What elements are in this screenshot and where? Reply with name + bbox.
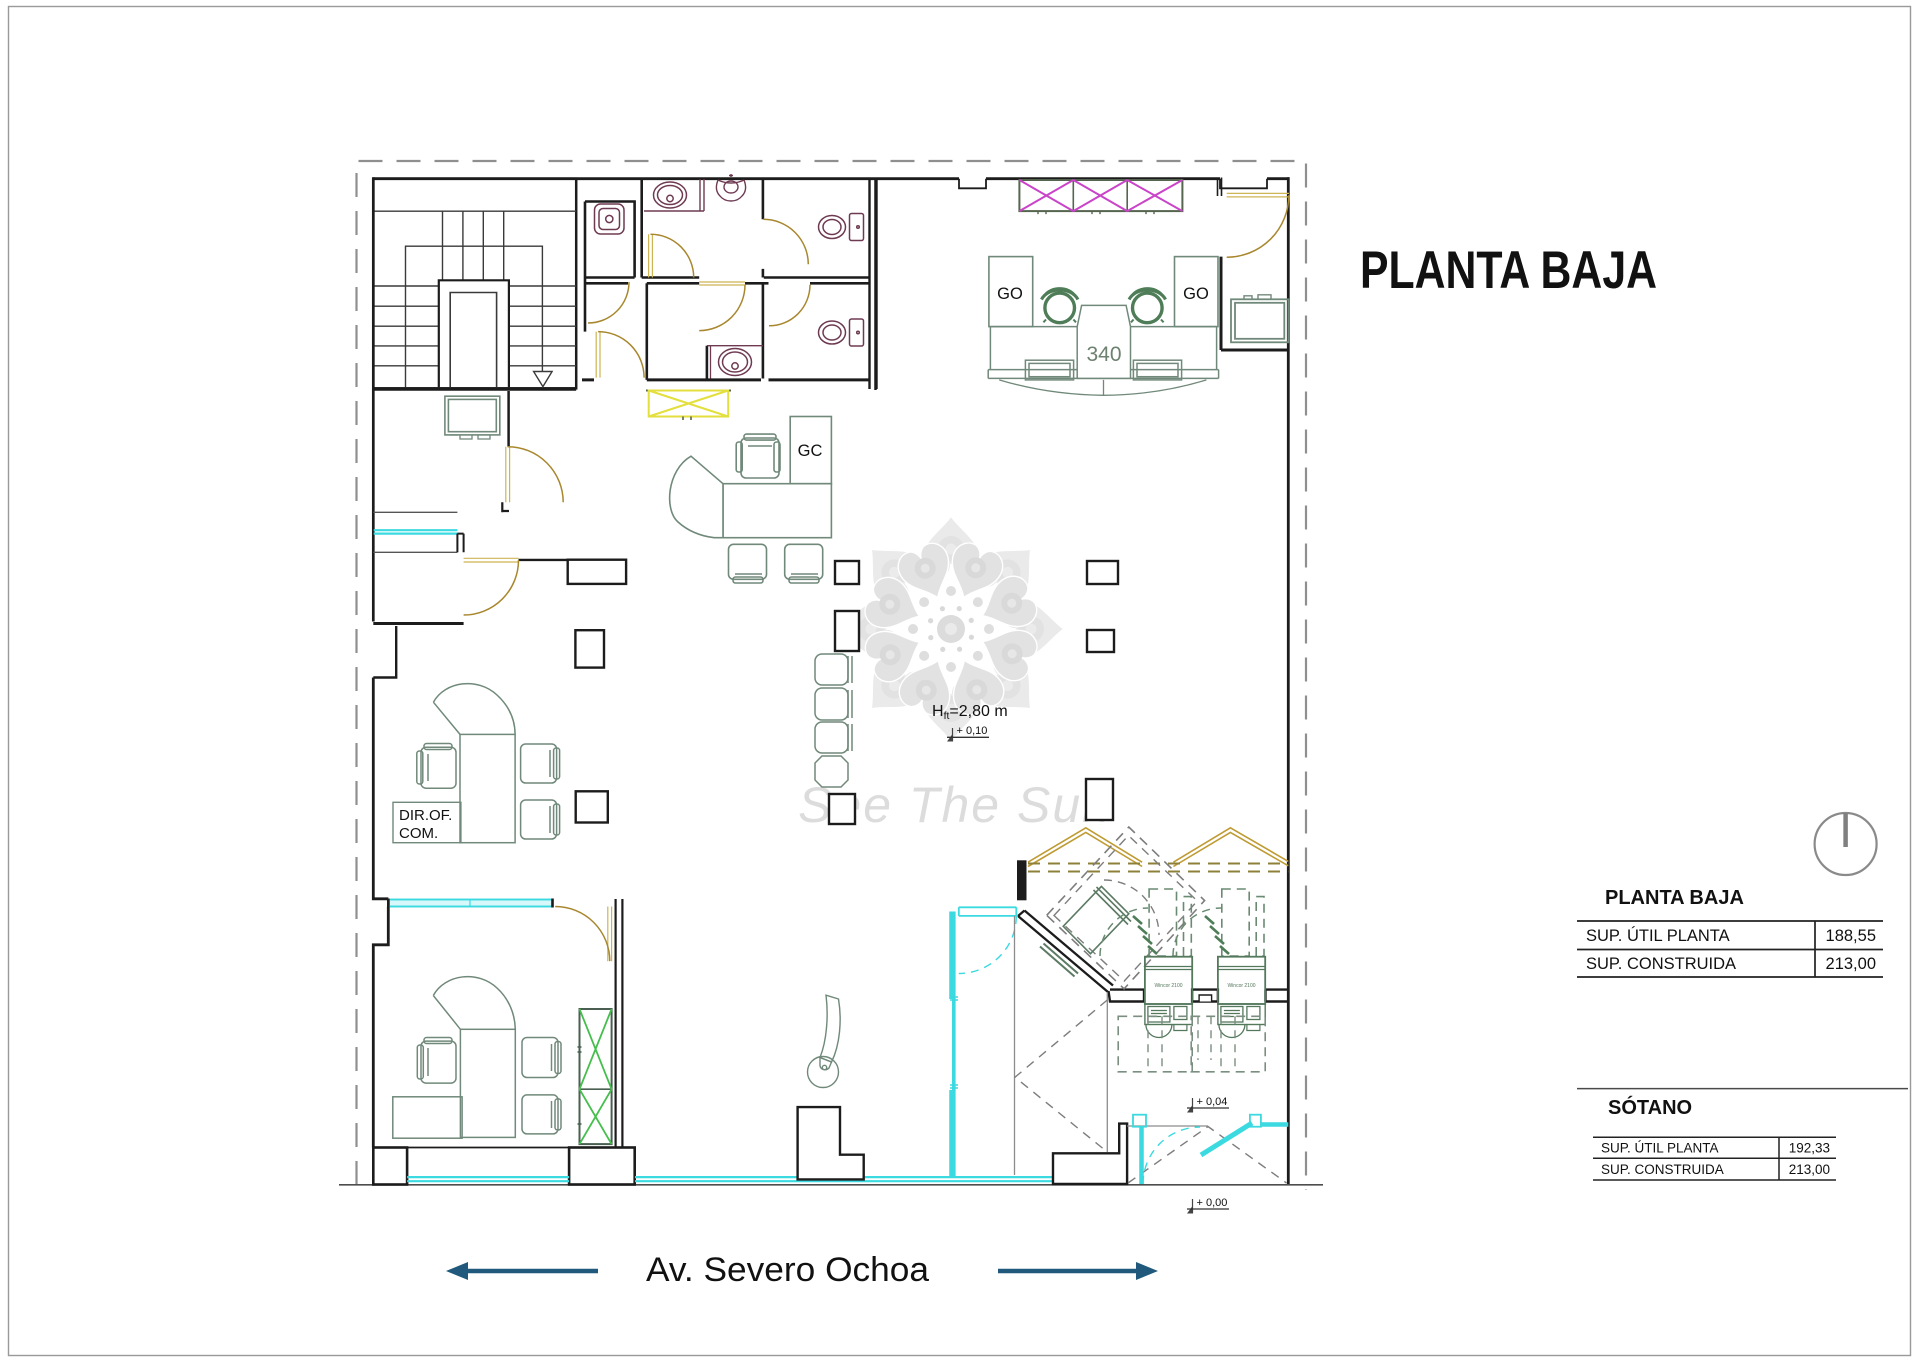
svg-text:COM.: COM. <box>399 825 438 842</box>
svg-text:340: 340 <box>1086 343 1121 366</box>
svg-text:+ 0,04: + 0,04 <box>1197 1096 1228 1108</box>
svg-text:SUP. ÚTIL PLANTA: SUP. ÚTIL PLANTA <box>1586 926 1730 945</box>
svg-text:Hft=2,80 m: Hft=2,80 m <box>932 703 1008 722</box>
svg-text:Av. Severo Ochoa: Av. Severo Ochoa <box>646 1251 929 1289</box>
svg-text:SUP. ÚTIL PLANTA: SUP. ÚTIL PLANTA <box>1601 1141 1719 1156</box>
svg-text:DIR.OF.: DIR.OF. <box>399 807 452 824</box>
svg-text:Wincor 2100: Wincor 2100 <box>1227 983 1255 989</box>
svg-text:213,00: 213,00 <box>1826 955 1876 973</box>
svg-text:SUP. CONSTRUIDA: SUP. CONSTRUIDA <box>1601 1162 1724 1177</box>
svg-text:SUP. CONSTRUIDA: SUP. CONSTRUIDA <box>1586 955 1736 973</box>
svg-text:192,33: 192,33 <box>1789 1141 1830 1156</box>
svg-text:PLANTA BAJA: PLANTA BAJA <box>1605 887 1744 909</box>
svg-text:188,55: 188,55 <box>1826 927 1876 945</box>
svg-text:SÓTANO: SÓTANO <box>1608 1095 1692 1119</box>
svg-text:GO: GO <box>997 285 1023 303</box>
svg-text:+ 0,10: + 0,10 <box>957 725 988 737</box>
svg-text:GO: GO <box>1183 285 1209 303</box>
svg-text:Wincor 2100: Wincor 2100 <box>1154 983 1182 989</box>
svg-text:213,00: 213,00 <box>1789 1162 1830 1177</box>
svg-text:+ 0,00: + 0,00 <box>1197 1197 1228 1209</box>
svg-text:PLANTA BAJA: PLANTA BAJA <box>1360 241 1657 300</box>
svg-text:GC: GC <box>798 442 823 460</box>
